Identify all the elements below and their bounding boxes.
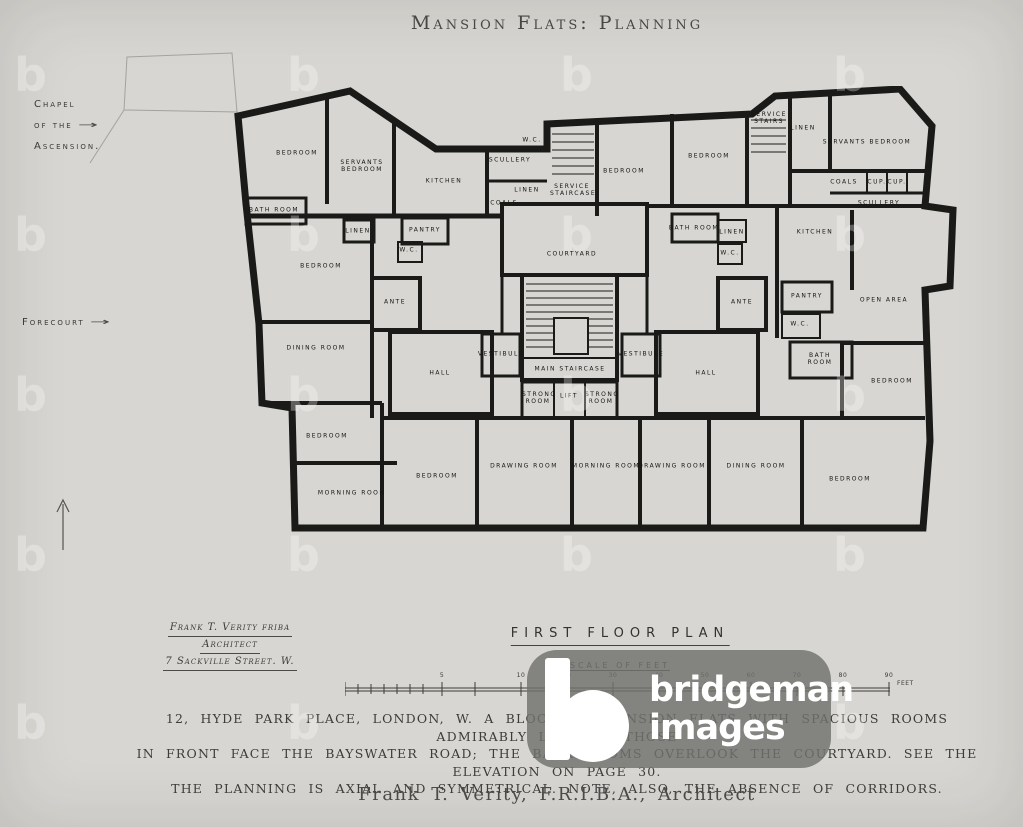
- room-label: DRAWING ROOM: [490, 463, 558, 470]
- watermark-b-icon: b: [14, 532, 47, 578]
- room-label: SERVICE STAIRCASE: [550, 183, 594, 197]
- room-label: LINEN: [345, 228, 370, 235]
- room-label: MORNING ROOM: [572, 463, 640, 470]
- room-label: PANTRY: [791, 293, 823, 300]
- room-label: KITCHEN: [797, 229, 834, 236]
- room-label: SCULLERY: [489, 157, 531, 164]
- scale-tick-label: 5: [440, 672, 444, 679]
- room-label: BEDROOM: [306, 433, 348, 440]
- right-arrow-icon: →: [90, 312, 115, 333]
- room-label: DINING ROOM: [727, 463, 786, 470]
- room-label: LINEN: [790, 125, 815, 132]
- room-label: KITCHEN: [426, 178, 463, 185]
- room-label: HALL: [429, 370, 450, 377]
- room-label: STRONG ROOM: [522, 391, 554, 405]
- watermark-b-icon: b: [14, 372, 47, 418]
- room-label: VESTIBULE: [478, 351, 524, 358]
- watermark-b-icon: b: [14, 700, 47, 746]
- room-label: SERVANTS BEDROOM: [823, 139, 911, 146]
- room-label: DRAWING ROOM: [638, 463, 706, 470]
- room-label: BATH ROOM: [249, 207, 299, 214]
- bridgeman-b-icon: [545, 658, 631, 760]
- room-label: BEDROOM: [300, 263, 342, 270]
- forecourt-note: Forecourt →: [22, 312, 100, 333]
- architect-stamp: Frank T. Verity friba Architect 7 Sackvi…: [150, 620, 310, 671]
- room-label: BEDROOM: [416, 473, 458, 480]
- room-label: MORNING ROOM: [318, 490, 386, 497]
- room-label: BEDROOM: [603, 168, 645, 175]
- room-label: W.C.: [399, 247, 418, 254]
- room-label: BEDROOM: [276, 150, 318, 157]
- stamp-line1: Frank T. Verity friba: [168, 620, 292, 637]
- room-label: COURTYARD: [547, 251, 597, 258]
- room-label: BATH ROOM: [806, 352, 834, 366]
- floor-plan: BEDROOMSERVANTS BEDROOMKITCHENSCULLERYW.…: [232, 86, 960, 548]
- watermark-b-icon: b: [14, 212, 47, 258]
- stamp-line3: 7 Sackville Street. W.: [163, 654, 296, 671]
- room-label: BEDROOM: [871, 378, 913, 385]
- room-labels: BEDROOMSERVANTS BEDROOMKITCHENSCULLERYW.…: [232, 86, 960, 548]
- scale-unit-label: FEET: [897, 680, 914, 687]
- watermark-b-icon: b: [14, 52, 47, 98]
- page-title: Mansion Flats: Planning: [411, 12, 703, 34]
- room-label: ANTE: [731, 299, 753, 306]
- room-label: CUP.: [887, 179, 906, 186]
- room-label: VESTIBULE: [618, 351, 664, 358]
- plan-title: FIRST FLOOR PLAN: [511, 626, 730, 646]
- room-label: PANTRY: [409, 227, 441, 234]
- room-label: STRONG ROOM: [585, 391, 617, 405]
- room-label: W.C.: [790, 321, 809, 328]
- room-label: BEDROOM: [829, 476, 871, 483]
- stamp-line2: Architect: [200, 637, 260, 654]
- room-label: LINEN: [719, 229, 744, 236]
- room-label: W.C.: [720, 250, 739, 257]
- room-label: CUP.: [867, 179, 886, 186]
- architect-credit: Frank T. Verity, F.R.I.B.A., Architect: [358, 784, 756, 805]
- room-label: COALS: [830, 179, 858, 186]
- bridgeman-brand2: images: [649, 709, 853, 747]
- room-label: SERVANTS BEDROOM: [339, 159, 385, 173]
- room-label: ANTE: [384, 299, 406, 306]
- room-label: W.C.: [522, 137, 541, 144]
- bridgeman-watermark: bridgeman images: [527, 650, 831, 768]
- scale-tick-label: 10: [517, 672, 526, 679]
- chapel-site-outline: [80, 45, 250, 175]
- scale-tick-label: 90: [885, 672, 894, 679]
- room-label: HALL: [695, 370, 716, 377]
- room-label: OPEN AREA: [860, 297, 908, 304]
- room-label: LIFT: [560, 393, 578, 400]
- room-label: SCULLERY: [858, 200, 900, 207]
- north-arrow-icon: [48, 492, 78, 554]
- room-label: BEDROOM: [688, 153, 730, 160]
- bridgeman-brand: bridgeman: [649, 671, 853, 709]
- room-label: BATH ROOM: [669, 225, 719, 232]
- room-label: DINING ROOM: [287, 345, 346, 352]
- room-label: SERVICE STAIRS: [749, 111, 789, 125]
- room-label: LINEN: [514, 187, 539, 194]
- room-label: MAIN STAIRCASE: [534, 366, 605, 373]
- room-label: COALS: [490, 200, 518, 207]
